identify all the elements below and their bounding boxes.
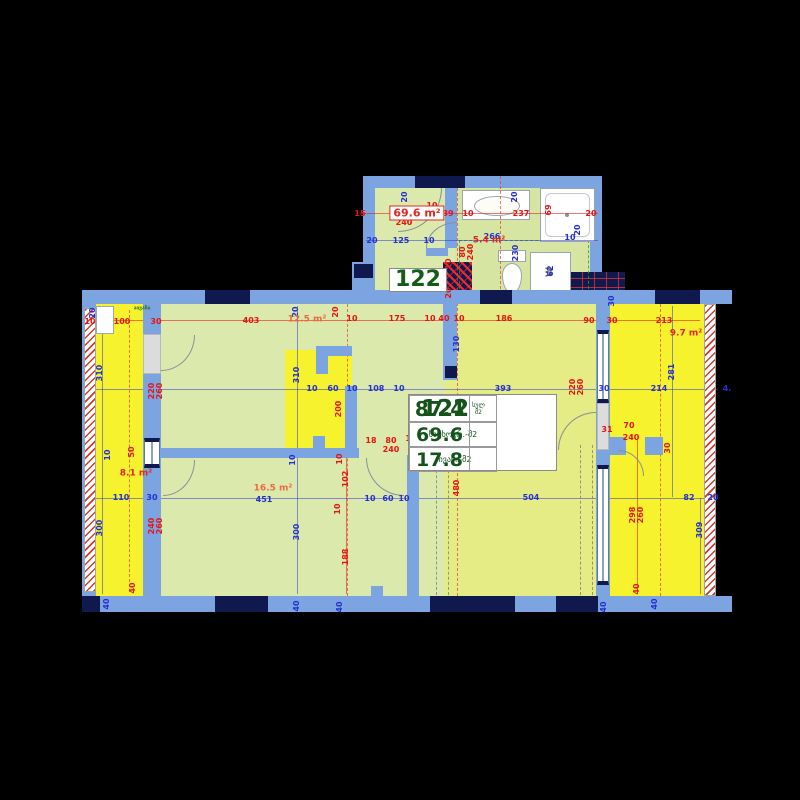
- dim-label: 10: [424, 315, 435, 323]
- dim-label: 393: [495, 385, 512, 393]
- dim-label: 30: [608, 295, 616, 306]
- total-label-bottom: მ2: [472, 409, 485, 416]
- dim-label: 40: [336, 601, 344, 612]
- dim-label: 403: [243, 317, 260, 325]
- dim-label: 69: [545, 204, 553, 215]
- dim-label: 30: [606, 317, 617, 325]
- dim-label: 213: [656, 317, 673, 325]
- dim-label: 10: [398, 495, 409, 503]
- dim-label: 40: [293, 600, 301, 611]
- room-area-label: 16.5 m²: [254, 485, 293, 494]
- dim-label: 300: [293, 524, 301, 541]
- room-area-label: 12.5 m²: [288, 316, 327, 325]
- dim-label: 20: [366, 237, 377, 245]
- dim-label: 102: [342, 471, 350, 488]
- dim-label: 110: [113, 494, 130, 502]
- dim-label: 200: [335, 401, 343, 418]
- dim-label: 50: [128, 446, 136, 457]
- dim-label: 30: [150, 318, 161, 326]
- dim-label: 10: [306, 385, 317, 393]
- dim-label: 10: [84, 318, 95, 326]
- dim-label: 480: [453, 480, 461, 497]
- dim-label: 40: [103, 598, 111, 609]
- dim-label: 20: [401, 191, 409, 202]
- dim-label: 10: [289, 454, 297, 465]
- dim-label: 30: [598, 385, 609, 393]
- dim-label: 40: [633, 583, 641, 594]
- dim-label: 310: [293, 367, 301, 384]
- dim-label: 31: [601, 426, 612, 434]
- dim-label: 20: [707, 494, 718, 502]
- dim-label: 108: [368, 385, 385, 393]
- dim-label: 240: [467, 244, 475, 261]
- dim-label: 451: [256, 496, 273, 504]
- dim-label: 20: [89, 307, 97, 318]
- total-label-top: სულ: [472, 402, 485, 409]
- dim-label: 4.: [723, 385, 732, 393]
- dim-label: 10: [336, 453, 344, 464]
- dim-label: 82: [683, 494, 694, 502]
- dim-label: 240: [383, 446, 400, 454]
- dim-label: 40: [438, 315, 449, 323]
- dim-label: 30: [146, 494, 157, 502]
- dim-label: 40: [129, 582, 137, 593]
- room-area-label: 9.7 m²: [670, 330, 702, 339]
- dim-label: 10: [346, 385, 357, 393]
- dim-label: 70: [623, 422, 634, 430]
- dim-label: 100: [114, 318, 131, 326]
- dim-label: 260: [156, 518, 164, 535]
- dim-label: 188: [342, 549, 350, 566]
- dim-label: 40: [651, 598, 659, 609]
- dim-label: 15: [354, 210, 365, 218]
- dim-label: 300: [96, 520, 104, 537]
- dim-label: 40: [600, 601, 608, 612]
- dim-label: 260: [577, 379, 585, 396]
- room-area-label: 8.1 m²: [120, 470, 152, 479]
- dim-label: 10: [334, 503, 342, 514]
- dim-label: 80: [385, 437, 396, 445]
- total-area-value: 87.4: [409, 395, 470, 422]
- dim-label: 20: [332, 306, 340, 317]
- dim-label: 175: [389, 315, 406, 323]
- dim-label: 62: [547, 265, 555, 276]
- floor-plan: W: [0, 0, 800, 800]
- dim-label: 214: [651, 385, 668, 393]
- dim-label: 60: [327, 385, 338, 393]
- balcony-area-value: 17.8: [409, 447, 470, 472]
- dim-label: 281: [668, 364, 676, 381]
- dim-label: 237: [513, 210, 530, 218]
- dim-label: 125: [393, 237, 410, 245]
- dim-label: 60: [382, 495, 393, 503]
- dim-label: 10: [346, 315, 357, 323]
- dim-label: 240: [623, 434, 640, 442]
- room-area-label: 122: [389, 268, 447, 292]
- living-area-value: 69.6: [409, 422, 470, 447]
- dim-label: 20: [585, 210, 596, 218]
- dim-label: 260: [156, 383, 164, 400]
- dim-label: 10: [393, 385, 404, 393]
- dim-label: 90: [583, 317, 594, 325]
- dim-label: 310: [96, 365, 104, 382]
- dim-label: 30: [664, 442, 672, 453]
- dim-label: 504: [523, 494, 540, 502]
- dim-label: 186: [496, 315, 513, 323]
- area-labels-layer: 69.6 m²1225.4 m²12.5 m²8.1 m²16.5 m²9.7 …: [0, 0, 800, 800]
- dim-label: 20: [511, 191, 519, 202]
- dim-label: 20: [574, 224, 582, 235]
- apartment-info-card: 122 სულ მ2 87.4 საცხოვრ.-მ2 69.6 აივანი-…: [408, 394, 557, 471]
- dim-label: 10: [453, 315, 464, 323]
- dim-label: 230: [512, 245, 520, 262]
- dim-label: 130: [453, 336, 461, 353]
- room-area-label: აივანი: [134, 307, 151, 312]
- room-area-label: 69.6 m²: [389, 206, 444, 221]
- dim-label: 10: [364, 495, 375, 503]
- room-area-label: 5.4 m²: [473, 237, 505, 246]
- dim-label: 18: [365, 437, 376, 445]
- dim-label: 309: [696, 522, 704, 539]
- dim-label: 260: [637, 507, 645, 524]
- dim-label: 10: [423, 237, 434, 245]
- dim-label: 10: [462, 210, 473, 218]
- dim-label: 10: [104, 449, 112, 460]
